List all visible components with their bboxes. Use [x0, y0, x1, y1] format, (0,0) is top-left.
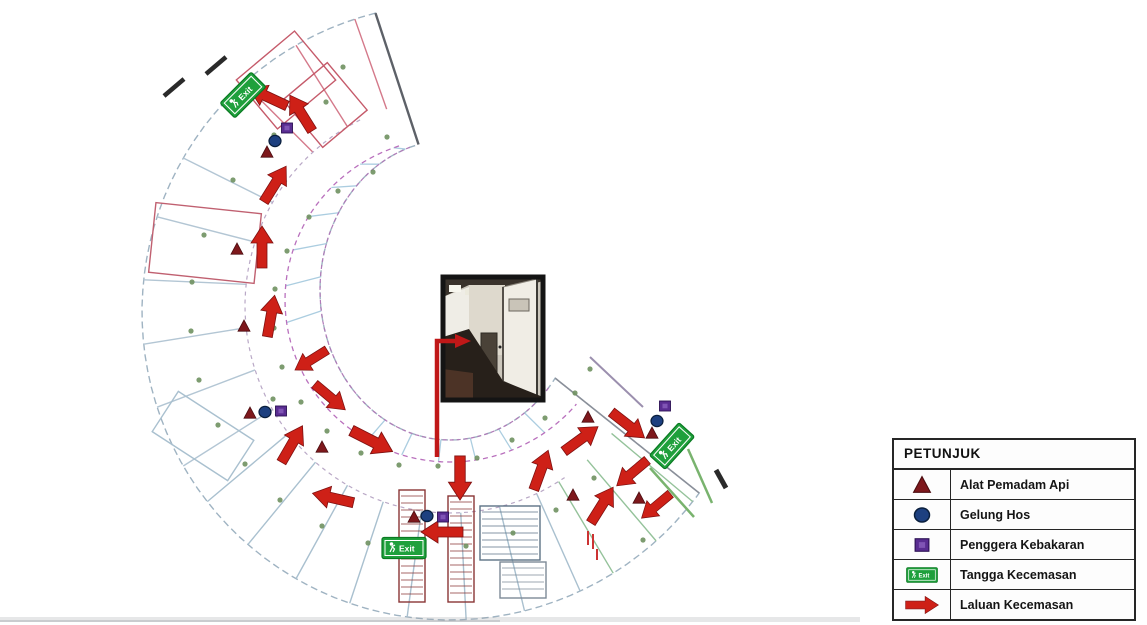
legend-row: Laluan Kecemasan — [894, 590, 1134, 619]
hose-reel-icon — [894, 500, 951, 529]
hose-reel-icon — [259, 406, 271, 417]
exit-sign: Exit — [907, 567, 938, 582]
extinguisher-icon — [914, 476, 931, 492]
exit-stair-icon: Exit — [894, 560, 951, 589]
hose-reel-icon — [421, 510, 433, 521]
legend-title: PETUNJUK — [894, 440, 1134, 470]
scan-artifact-line — [0, 620, 500, 622]
legend-row: Alat Pemadam Api — [894, 470, 1134, 500]
hose-reel-icon — [915, 508, 930, 522]
legend-item-label: Penggera Kebakaran — [951, 530, 1134, 559]
exit-sign: Exit — [382, 538, 426, 559]
legend-row: Penggera Kebakaran — [894, 530, 1134, 560]
exit-sign-label: Exit — [919, 573, 930, 579]
extinguisher-icon — [646, 427, 658, 438]
fire-alarm-icon — [438, 512, 449, 522]
route-arrow-icon — [906, 596, 939, 613]
legend-box: PETUNJUK Alat Pemadam ApiGelung HosPengg… — [892, 438, 1136, 621]
running-man-icon — [912, 570, 915, 573]
legend-row: Gelung Hos — [894, 500, 1134, 530]
fire-alarm-icon — [660, 401, 671, 411]
fire-alarm-icon — [915, 538, 929, 551]
legend-rows: Alat Pemadam ApiGelung HosPenggera Kebak… — [894, 470, 1134, 619]
exit-sign-label: Exit — [399, 543, 415, 553]
legend-item-label: Laluan Kecemasan — [951, 590, 1134, 619]
route-arrow-icon — [894, 590, 951, 619]
hose-reel-icon — [269, 135, 281, 146]
fire-alarm-icon — [276, 406, 287, 416]
fire-alarm-icon — [894, 530, 951, 559]
fire-alarm-icon — [282, 123, 293, 133]
legend-item-label: Gelung Hos — [951, 500, 1134, 529]
legend-item-label: Alat Pemadam Api — [951, 470, 1134, 499]
evacuation-plan-page: ExitExitExit PETUNJUK Alat Pemadam ApiGe… — [0, 0, 1147, 625]
hose-reel-icon — [651, 415, 663, 426]
legend-item-label: Tangga Kecemasan — [951, 560, 1134, 589]
floor-plan-svg: ExitExitExit — [0, 0, 880, 625]
legend-row: ExitTangga Kecemasan — [894, 560, 1134, 590]
running-man-icon — [390, 542, 394, 546]
extinguisher-triangle-icon — [894, 470, 951, 499]
